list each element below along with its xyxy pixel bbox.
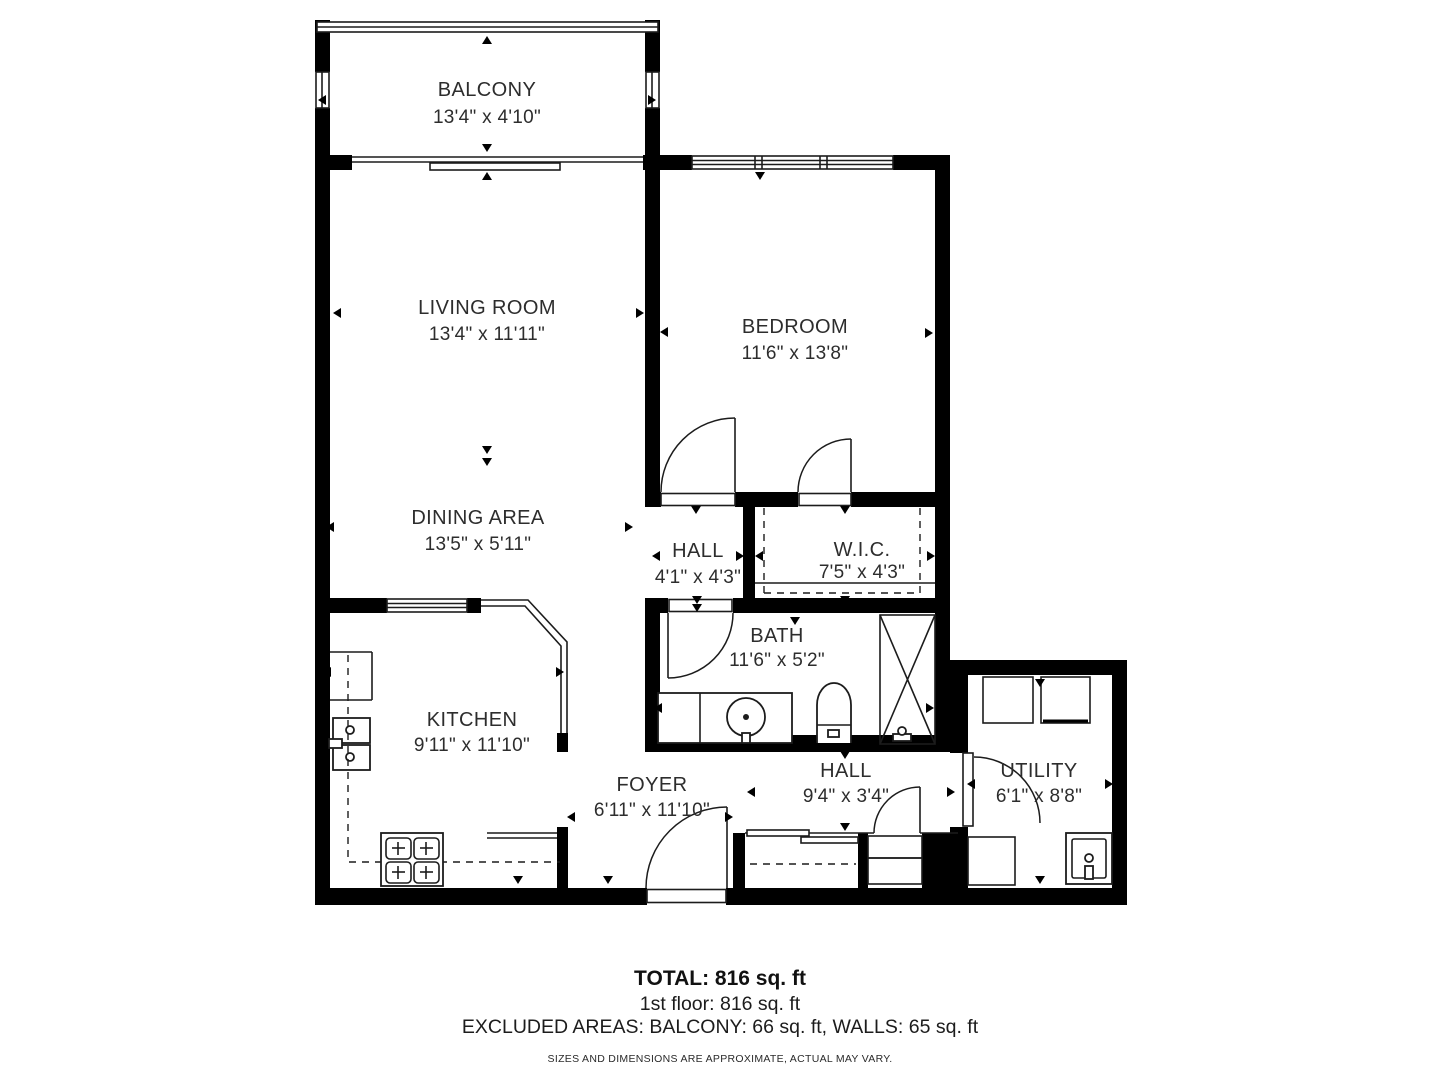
room-label-balcony: BALCONY 13'4" x 4'10" <box>433 79 541 128</box>
svg-text:BEDROOM: BEDROOM <box>742 316 848 338</box>
svg-text:11'6" x 5'2": 11'6" x 5'2" <box>729 650 825 671</box>
svg-text:DINING AREA: DINING AREA <box>411 507 545 529</box>
entry-door-threshold <box>647 890 726 903</box>
svg-text:7'5" x 4'3": 7'5" x 4'3" <box>819 562 905 583</box>
sliding-closet-door <box>747 830 809 836</box>
bedroom-door-threshold <box>661 494 735 506</box>
svg-text:UTILITY: UTILITY <box>1000 760 1077 782</box>
svg-text:HALL: HALL <box>672 540 724 562</box>
shower <box>880 615 935 744</box>
floor-plan-svg: BALCONY 13'4" x 4'10" LIVING ROOM 13'4" … <box>0 0 1440 1080</box>
room-label-living-room: LIVING ROOM 13'4" x 11'11" <box>418 297 556 345</box>
svg-text:FOYER: FOYER <box>617 774 688 796</box>
stove <box>381 833 443 886</box>
summary: TOTAL: 816 sq. ft 1st floor: 816 sq. ft … <box>462 967 979 1065</box>
bedroom-door <box>661 418 735 492</box>
wic-door-threshold <box>799 494 851 506</box>
room-label-dining-area: DINING AREA 13'5" x 5'11" <box>411 507 545 555</box>
svg-text:KITCHEN: KITCHEN <box>427 709 518 731</box>
svg-text:6'11" x 11'10": 6'11" x 11'10" <box>594 800 710 821</box>
summary-excluded: EXCLUDED AREAS: BALCONY: 66 sq. ft, WALL… <box>462 1016 979 1038</box>
room-label-foyer: FOYER 6'11" x 11'10" <box>594 774 710 821</box>
svg-text:11'6" x 13'8": 11'6" x 13'8" <box>742 343 849 364</box>
windows <box>316 22 893 733</box>
floor-plan-page: BALCONY 13'4" x 4'10" LIVING ROOM 13'4" … <box>0 0 1440 1080</box>
room-label-wic: W.I.C. 7'5" x 4'3" <box>819 539 905 583</box>
summary-disclaimer: SIZES AND DIMENSIONS ARE APPROXIMATE, AC… <box>548 1053 893 1065</box>
dryer <box>1041 677 1090 723</box>
toilet <box>817 683 851 743</box>
room-label-hall-upper: HALL 4'1" x 4'3" <box>655 540 741 588</box>
fixtures <box>329 508 1112 886</box>
bath-door <box>668 613 733 678</box>
summary-floor: 1st floor: 816 sq. ft <box>640 993 801 1015</box>
room-label-bedroom: BEDROOM 11'6" x 13'8" <box>742 316 849 364</box>
room-label-hall-lower: HALL 9'4" x 3'4" <box>803 760 889 807</box>
small-closet <box>868 836 922 858</box>
svg-text:9'11" x 11'10": 9'11" x 11'10" <box>414 735 530 756</box>
room-label-kitchen: KITCHEN 9'11" x 11'10" <box>414 709 530 756</box>
utility-sink <box>1066 833 1112 884</box>
bedroom-window <box>692 156 893 169</box>
washer <box>983 677 1033 723</box>
svg-text:BATH: BATH <box>750 625 803 647</box>
room-label-bath: BATH 11'6" x 5'2" <box>729 625 825 671</box>
kitchen-window <box>387 599 467 612</box>
svg-text:13'5" x 5'11": 13'5" x 5'11" <box>425 534 532 555</box>
room-label-utility: UTILITY 6'1" x 8'8" <box>996 760 1082 807</box>
svg-text:BALCONY: BALCONY <box>438 79 536 101</box>
svg-text:13'4" x 11'11": 13'4" x 11'11" <box>429 324 545 345</box>
svg-text:LIVING ROOM: LIVING ROOM <box>418 297 556 319</box>
utility-cabinet <box>968 837 1015 885</box>
svg-text:9'4" x 3'4": 9'4" x 3'4" <box>803 786 889 807</box>
svg-text:6'1" x 8'8": 6'1" x 8'8" <box>996 786 1082 807</box>
svg-text:W.I.C.: W.I.C. <box>834 539 891 561</box>
svg-text:4'1" x 4'3": 4'1" x 4'3" <box>655 567 741 588</box>
svg-text:HALL: HALL <box>820 760 872 782</box>
balcony-sliding-door <box>352 157 643 170</box>
svg-text:13'4" x 4'10": 13'4" x 4'10" <box>433 107 541 128</box>
bath-vanity-sink <box>658 693 792 743</box>
summary-total: TOTAL: 816 sq. ft <box>634 967 806 990</box>
kitchen-counter <box>329 652 560 862</box>
wic-door <box>798 439 851 492</box>
